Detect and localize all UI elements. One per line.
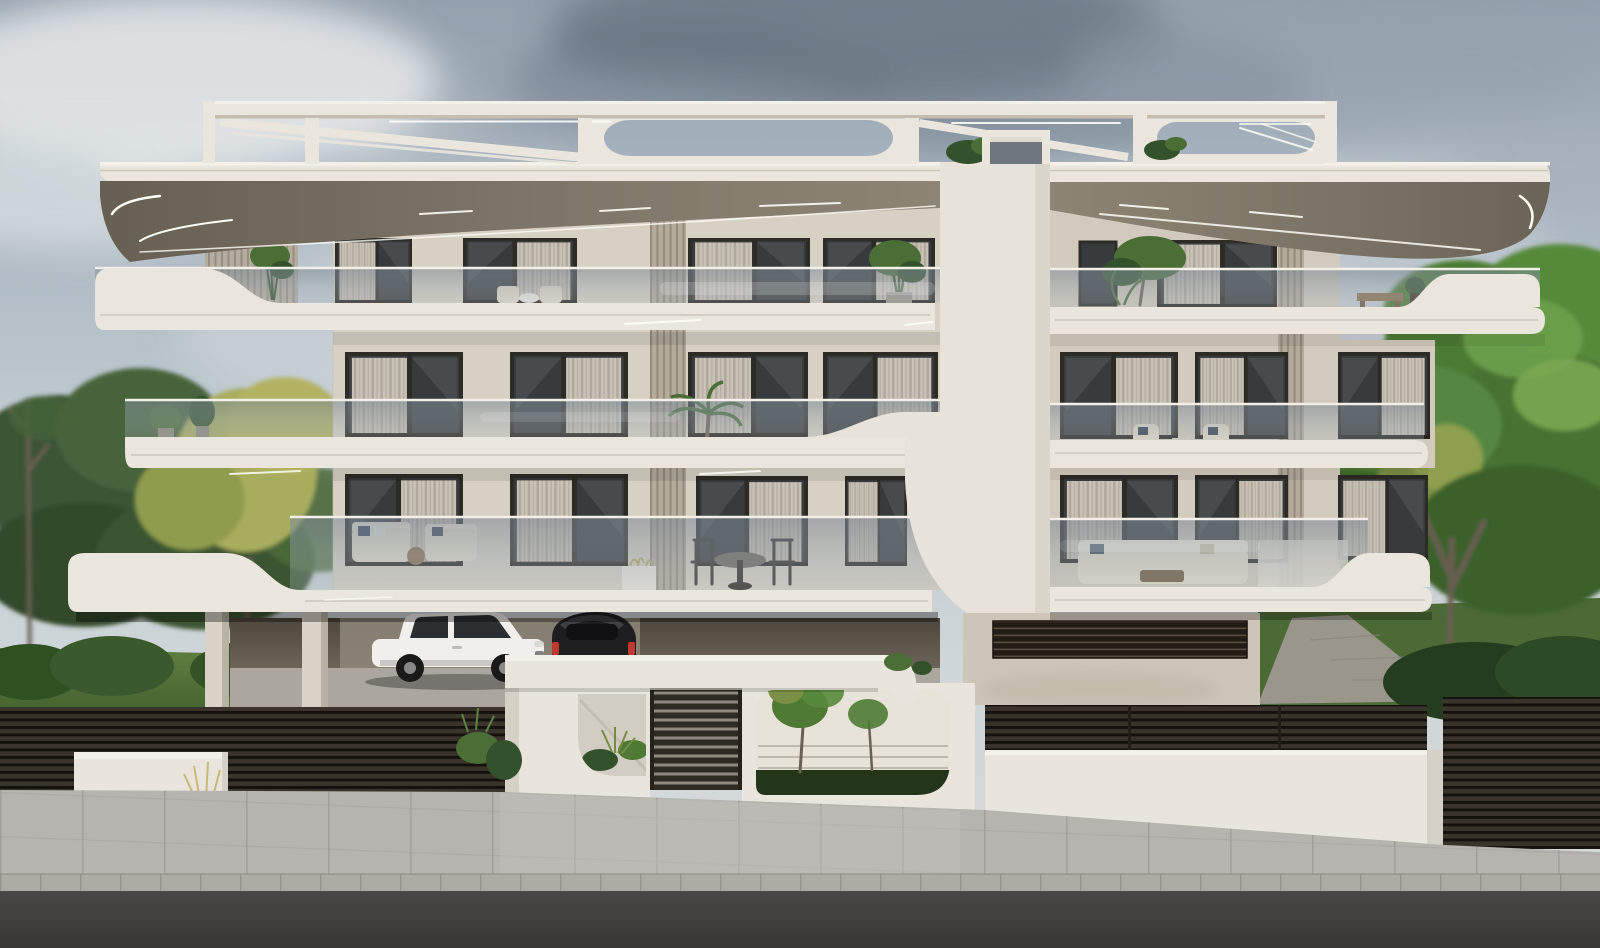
curb xyxy=(0,874,1600,891)
gate-slats xyxy=(650,690,742,790)
ground-floor-right xyxy=(963,613,1260,708)
architectural-render xyxy=(0,0,1600,948)
louver-vent xyxy=(993,621,1247,658)
far-right-fence xyxy=(1443,697,1600,849)
render-canvas xyxy=(0,0,1600,948)
entrance-gate xyxy=(505,653,975,812)
road xyxy=(0,891,1600,948)
